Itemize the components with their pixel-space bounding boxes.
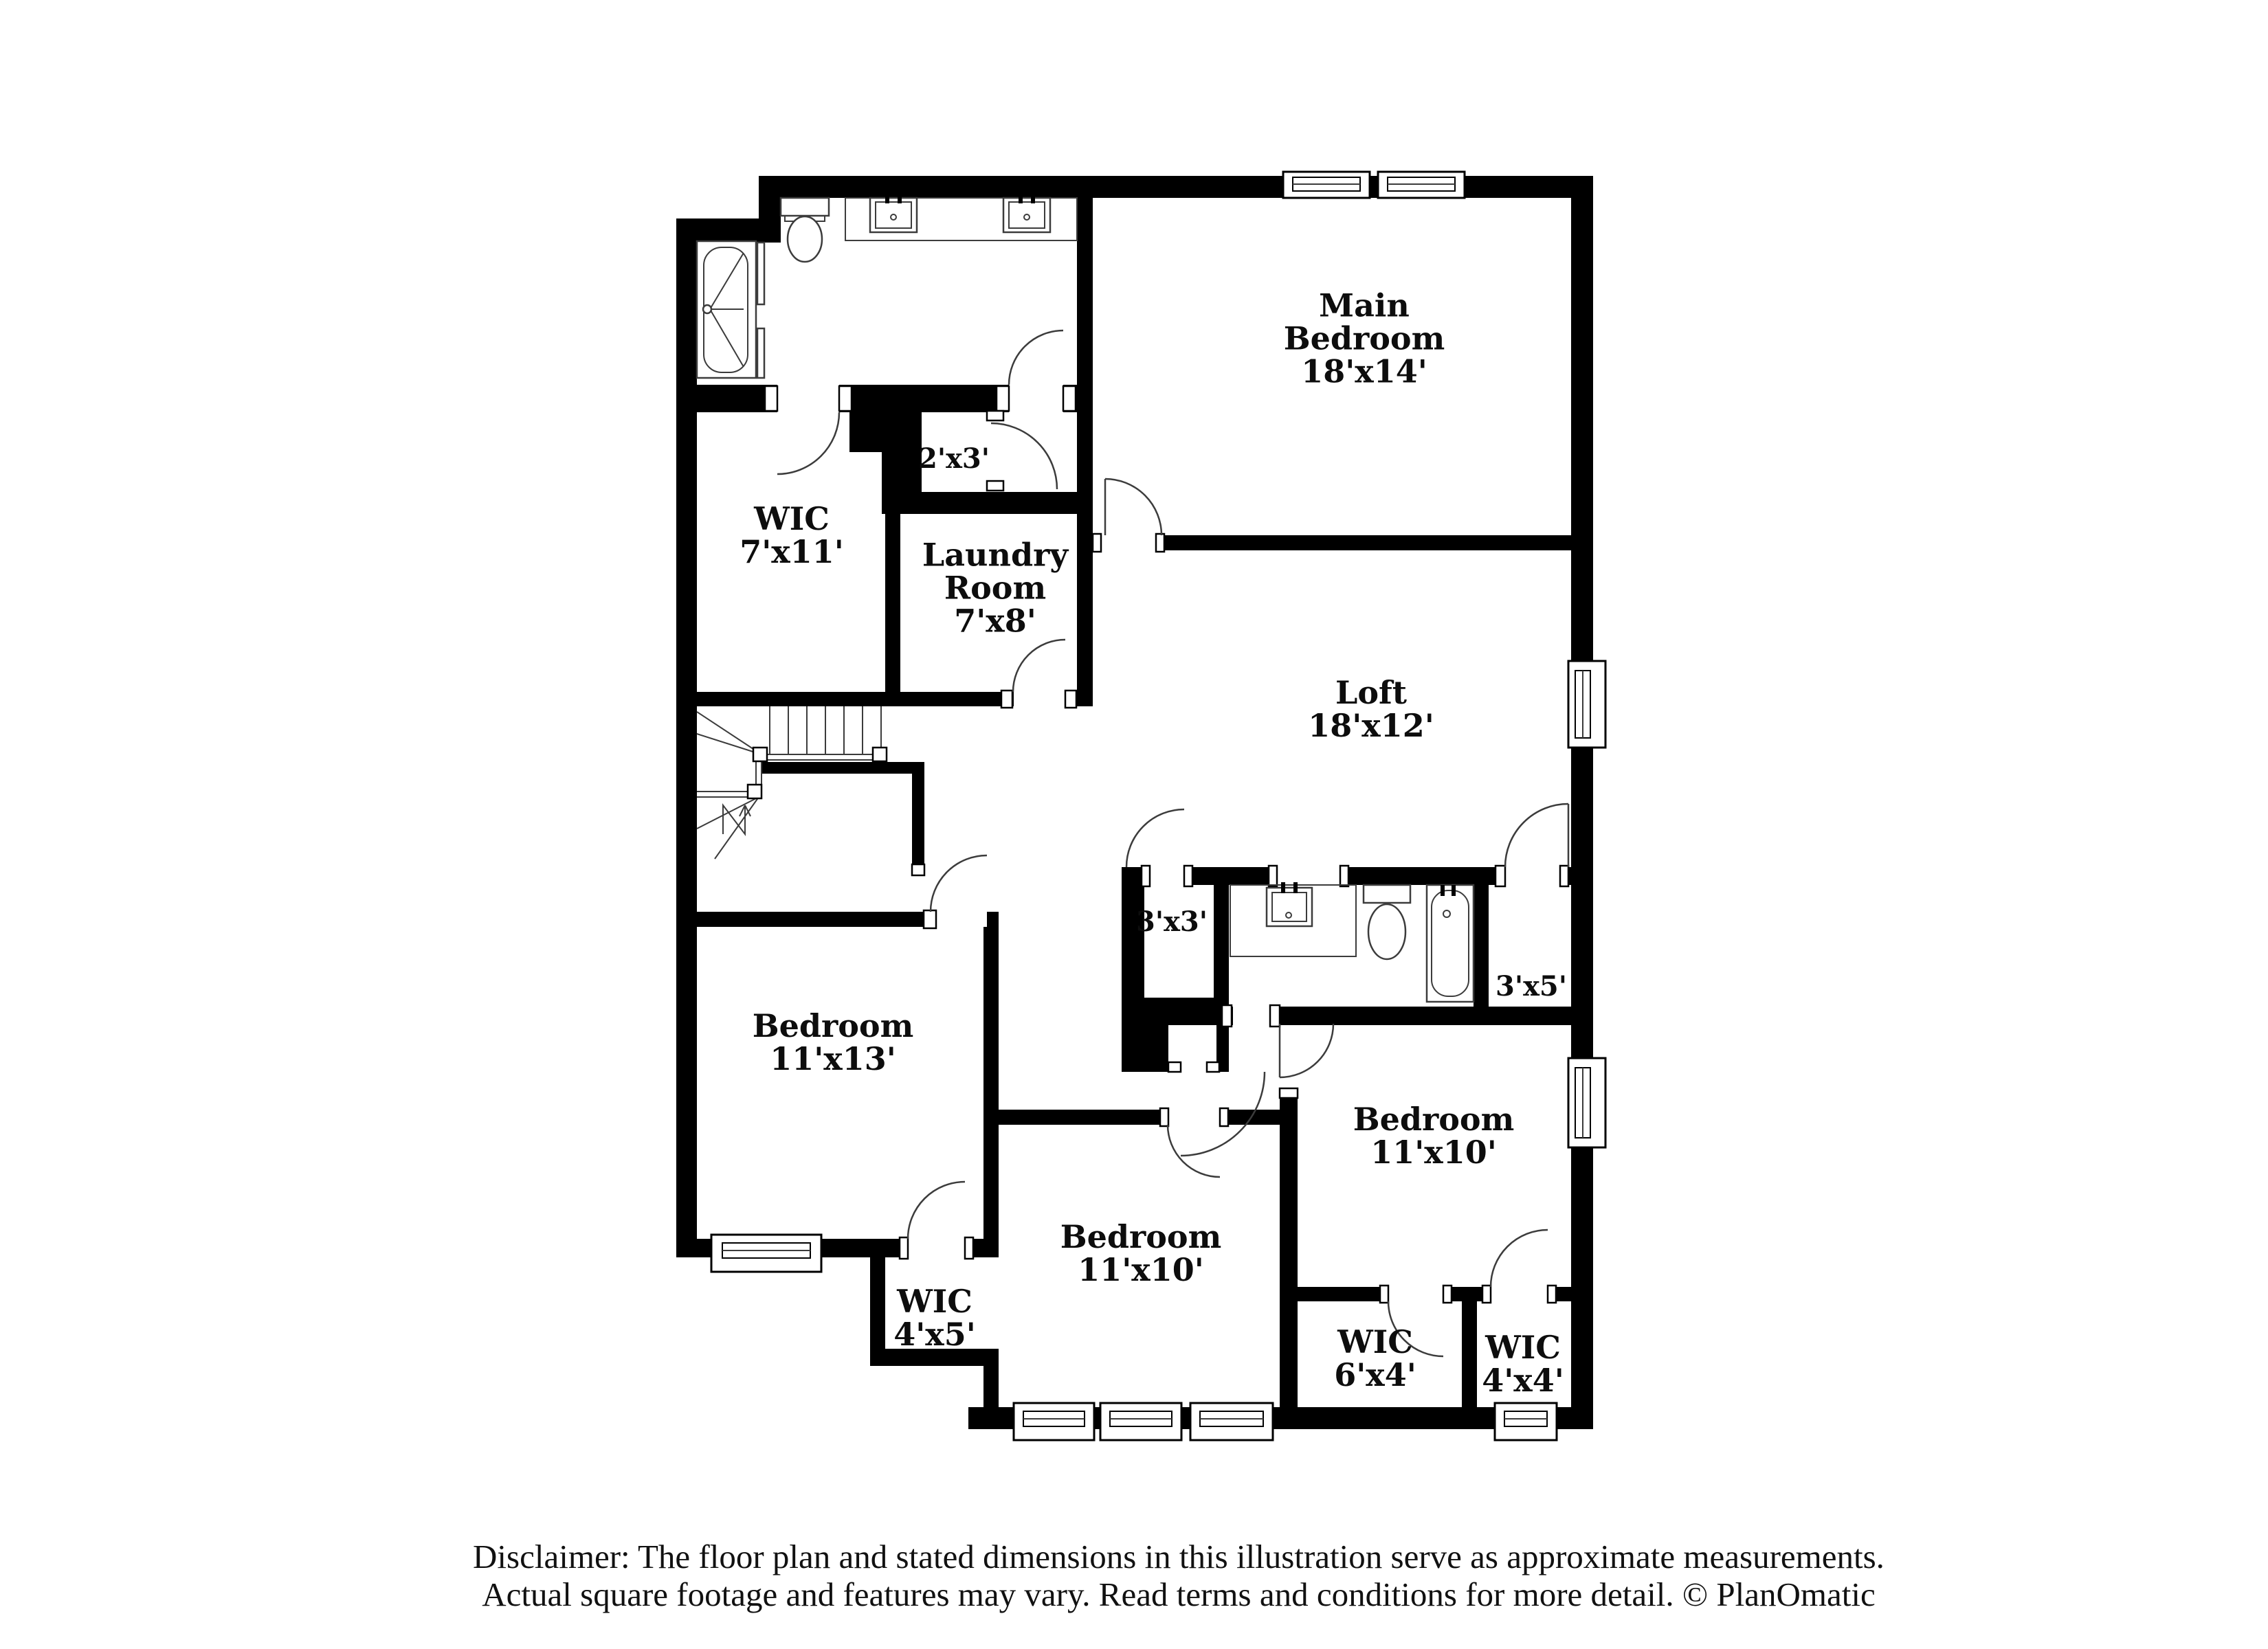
window-bedroom-mid-2 — [1100, 1403, 1181, 1440]
room-dims: 18'x14' — [1261, 355, 1467, 388]
stair-newel — [748, 785, 761, 798]
disclaimer-line-1: Disclaimer: The floor plan and stated di… — [285, 1538, 2072, 1575]
room-dims: 11'x10' — [1317, 1136, 1550, 1169]
room-name: WIC — [866, 1286, 1003, 1319]
disclaimer-line-2: Actual square footage and features may v… — [285, 1575, 2072, 1613]
room-label-laundry-room: Laundry Room 7'x8' — [913, 539, 1078, 637]
room-name: Bedroom — [716, 1010, 950, 1043]
room-label-wic-6x4: WIC 6'x4' — [1307, 1326, 1444, 1392]
room-label-loft: Loft 18'x12' — [1268, 677, 1474, 743]
stair-newel — [873, 748, 887, 761]
room-dims: 7'x8' — [913, 605, 1078, 638]
vanity-top — [845, 191, 1077, 240]
door-bedroom-mid — [1168, 1125, 1220, 1177]
door-closet-3x5 — [1505, 804, 1568, 867]
room-name: Main Bedroom — [1261, 289, 1467, 355]
room-label-main-bedroom: Main Bedroom 18'x14' — [1261, 289, 1467, 388]
room-label-wic-4x4: WIC 4'x4' — [1454, 1332, 1592, 1398]
door-wic-4x5 — [908, 1182, 965, 1239]
window-main-bedroom-2 — [1378, 172, 1465, 198]
room-dims: 11'x10' — [1024, 1254, 1258, 1287]
door-main-bedroom — [1105, 479, 1161, 535]
door-bedroom-right — [1280, 1024, 1333, 1077]
door-closet-3x3 — [1126, 809, 1184, 867]
window-wic-4x4 — [1495, 1403, 1557, 1440]
door-hall-stairs — [931, 855, 987, 912]
room-label-bedroom-11x13: Bedroom 11'x13' — [716, 1010, 950, 1076]
sink-mid — [1267, 882, 1312, 926]
mid-bathroom-fixtures — [1230, 882, 1474, 1002]
room-label-closet-2x3: 2'x3' — [892, 445, 1016, 473]
room-dims: 18'x12' — [1268, 710, 1474, 743]
door-laundry — [1013, 640, 1065, 692]
room-label-wic-7x11: WIC 7'x11' — [702, 503, 881, 569]
stairs — [697, 706, 887, 859]
floor-plan-canvas — [0, 0, 2268, 1649]
sink-top-2 — [1003, 191, 1050, 232]
stair-newel — [753, 748, 767, 761]
room-label-closet-3x3: 3'x3' — [1110, 908, 1234, 936]
room-dims: 3'x5' — [1469, 972, 1593, 1001]
room-dims: 2'x3' — [892, 445, 1016, 473]
room-dims: 4'x5' — [866, 1319, 1003, 1351]
room-name: Bedroom — [1317, 1103, 1550, 1136]
sink-top-1 — [870, 191, 917, 232]
window-main-bedroom-1 — [1283, 172, 1370, 198]
room-dims: 11'x13' — [716, 1043, 950, 1076]
window-bedroom-mid-3 — [1190, 1403, 1273, 1440]
room-name: Laundry Room — [913, 539, 1078, 605]
room-name: Bedroom — [1024, 1221, 1258, 1254]
door-wic-4x4 — [1491, 1230, 1548, 1287]
toilet-mid — [1364, 885, 1410, 959]
stair-direction-arrow — [723, 805, 751, 834]
room-label-bedroom-mid: Bedroom 11'x10' — [1024, 1221, 1258, 1287]
room-dims: 6'x4' — [1307, 1359, 1444, 1392]
window-bedroom-11x13 — [711, 1235, 821, 1272]
window-bedroom-right — [1568, 1058, 1605, 1147]
room-name: WIC — [1454, 1332, 1592, 1365]
door-wic-7x11 — [777, 412, 839, 474]
room-dims: 4'x4' — [1454, 1365, 1592, 1398]
door-bathroom-top — [1009, 330, 1063, 385]
room-dims: 3'x3' — [1110, 908, 1234, 936]
room-name: WIC — [702, 503, 881, 536]
bathtub — [1427, 885, 1474, 1002]
disclaimer: Disclaimer: The floor plan and stated di… — [285, 1538, 2072, 1613]
room-label-bedroom-right: Bedroom 11'x10' — [1317, 1103, 1550, 1169]
room-name: WIC — [1307, 1326, 1444, 1359]
toilet-top — [781, 198, 829, 262]
window-bedroom-mid-1 — [1014, 1403, 1094, 1440]
room-dims: 7'x11' — [702, 536, 881, 569]
window-loft-right — [1568, 661, 1605, 748]
room-label-wic-4x5: WIC 4'x5' — [866, 1286, 1003, 1351]
shower — [697, 241, 764, 378]
room-label-closet-3x5: 3'x5' — [1469, 972, 1593, 1001]
room-name: Loft — [1268, 677, 1474, 710]
floor-plan: Main Bedroom 18'x14' WIC 7'x11' Laundry … — [0, 0, 2268, 1649]
